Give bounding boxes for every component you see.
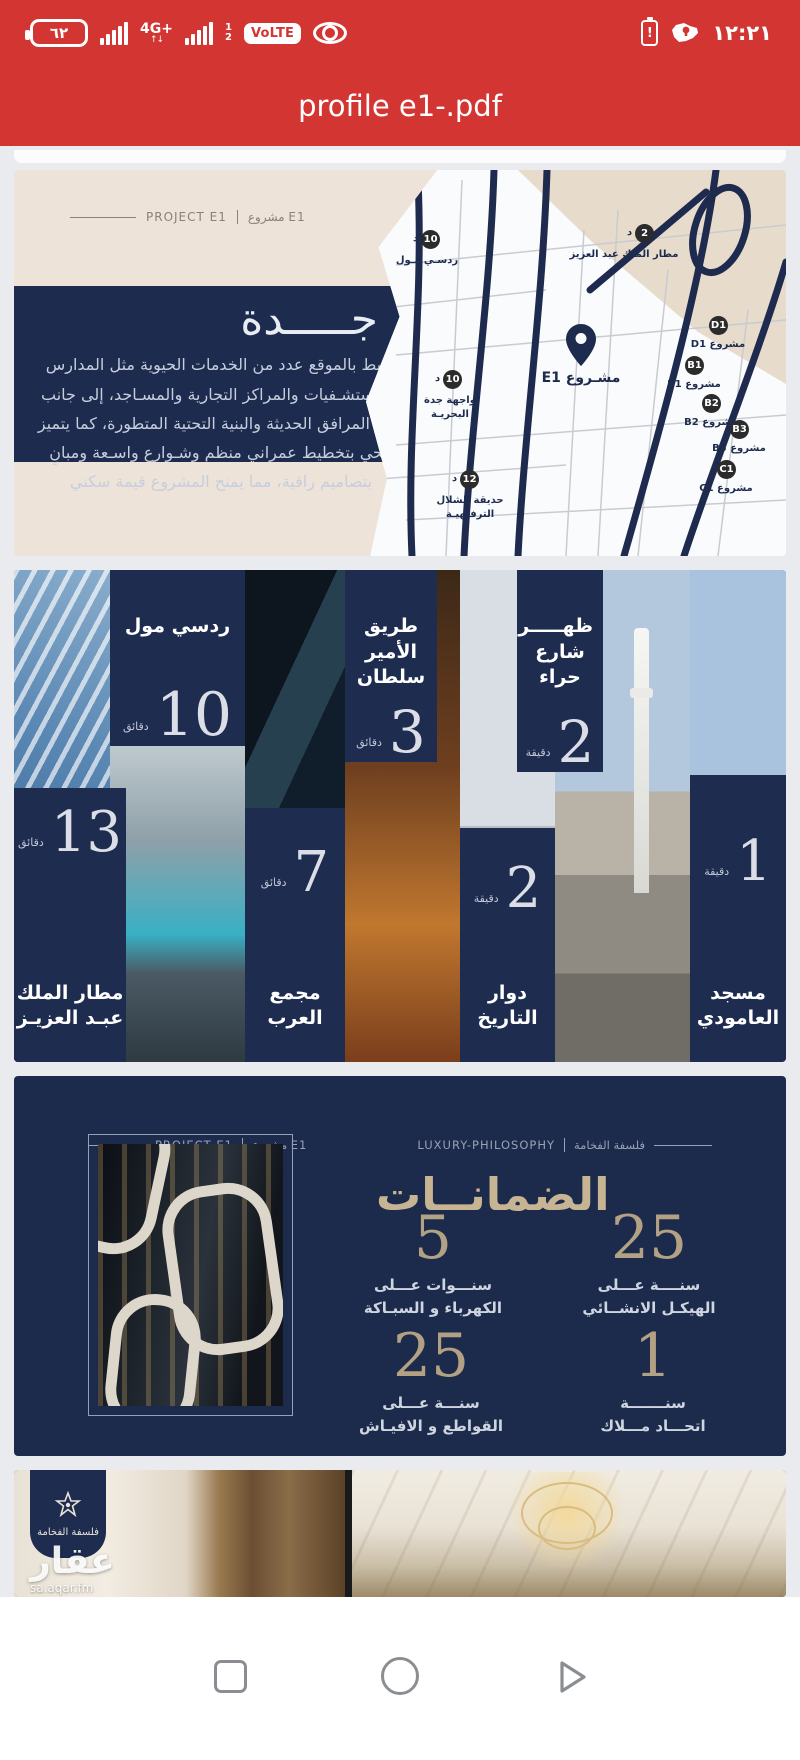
guarantee-value: 1 bbox=[558, 1326, 748, 1386]
guarantee-line2: الهيكـل الانشــائي bbox=[582, 1299, 715, 1317]
status-right-cluster: ! ١٢:٢١ bbox=[641, 16, 772, 50]
map-pin-project-d1-label: مشروع D1 bbox=[686, 338, 750, 352]
map-pin-project-c1: C1 bbox=[717, 460, 736, 479]
pdf-page-guarantees: PROJECT E1 مشروع E1 LUXURY-PHILOSOPHY فل… bbox=[14, 1076, 786, 1456]
map-pin-project-b1: B1 bbox=[685, 356, 704, 375]
guarantee-line2: القواطع و الافيـاش bbox=[359, 1417, 503, 1435]
map-pin-airport-label: مطار الملك عبد العزيز bbox=[559, 248, 689, 262]
project-tag: PROJECT E1 مشروع E1 bbox=[70, 210, 306, 224]
photo-divider bbox=[345, 1470, 352, 1597]
network-4g-label: 4G+ bbox=[140, 22, 173, 36]
luxury-tag-ar: فلسفة الفخامة bbox=[574, 1138, 645, 1152]
status-left-cluster: ٦٢ 4G+ ↑↓ 1 2 VoLTE bbox=[30, 16, 347, 50]
location-card-airport: دقائق 13 مطار الملك عبـد العزيـز bbox=[14, 788, 126, 1062]
chandelier bbox=[512, 1472, 622, 1572]
location-minutes: 2 bbox=[506, 864, 542, 914]
previous-page-edge bbox=[14, 150, 786, 163]
location-name: ظهـــــر شارع حراء bbox=[527, 614, 593, 691]
map-pin-project-c1-label: مشروع C1 bbox=[694, 482, 758, 496]
map-pin-airport: د 2 bbox=[627, 224, 654, 243]
project-location-marker-icon bbox=[566, 324, 596, 370]
mosque-minaret bbox=[634, 628, 649, 893]
signal-bars-sim2-icon bbox=[185, 21, 213, 45]
battery-icon: ٦٢ bbox=[30, 19, 88, 47]
pdf-page-interiors: فلسفة الفخامة عقار sa.aqar.fm bbox=[14, 1470, 786, 1597]
location-minutes: 10 bbox=[156, 688, 232, 742]
location-card-hira-street: ظهـــــر شارع حراء دقيقة 2 bbox=[517, 570, 603, 772]
sim2-label: 2 bbox=[225, 33, 232, 43]
tag-separator bbox=[237, 210, 238, 224]
luxury-philosophy-tag: LUXURY-PHILOSOPHY فلسفة الفخامة bbox=[417, 1138, 712, 1152]
guarantee-line2: الكهرباء و السبـاكة bbox=[364, 1299, 502, 1317]
location-card-amoudi-mosque: دقيقة 1 مسجد العامودي bbox=[690, 775, 786, 1062]
clock: ١٢:٢١ bbox=[712, 21, 772, 45]
location-unit: دقيقة bbox=[526, 746, 551, 759]
city-about-text: يحيط بالموقع عدد من الخدمات الحيوية مثل … bbox=[30, 350, 412, 496]
home-button[interactable] bbox=[381, 1657, 419, 1695]
recents-button[interactable] bbox=[214, 1660, 247, 1693]
building-photo-frame bbox=[88, 1134, 293, 1416]
guarantee-value: 25 bbox=[336, 1326, 526, 1386]
sim-slot-indicator: 1 2 bbox=[225, 23, 232, 43]
volte-badge: VoLTE bbox=[244, 23, 301, 44]
location-name: مطار الملك عبـد العزيـز bbox=[14, 981, 126, 1032]
location-card-redsea-mall: ردسي مول دقائق 10 bbox=[110, 570, 245, 746]
pdf-file-title: profile e1-.pdf bbox=[298, 89, 502, 123]
location-name: طريق الأمير سلطان bbox=[355, 614, 427, 691]
watermark-text: عقار bbox=[30, 1544, 115, 1580]
map-pin-redsea-mall: د 10 bbox=[413, 230, 440, 249]
guarantee-line1: سنــــة عـــلى bbox=[598, 1276, 701, 1294]
city-description-panel: جـــــدة يحيط بالموقع عدد من الخدمات الح… bbox=[14, 286, 438, 462]
project-tag-en: PROJECT E1 bbox=[146, 210, 227, 224]
location-minutes: 3 bbox=[389, 706, 426, 758]
location-minutes: 2 bbox=[558, 716, 595, 768]
map-pin-redsea-mall-label: ردسـي مـول bbox=[392, 254, 462, 268]
status-bar: ٦٢ 4G+ ↑↓ 1 2 VoLTE ! bbox=[0, 0, 800, 66]
data-arrows-icon: ↑↓ bbox=[150, 36, 163, 45]
brand-logo-text: فلسفة الفخامة bbox=[37, 1527, 99, 1538]
location-card-history-roundabout: دقيقة 2 دوار التاريخ bbox=[460, 828, 555, 1062]
saudi-map-location-icon bbox=[670, 21, 700, 45]
guarantee-electric-plumbing: 5 سنـــوات عـــلىالكهرباء و السبـاكة bbox=[338, 1208, 528, 1321]
location-name: ردسي مول bbox=[120, 614, 235, 640]
location-unit: دقائق bbox=[261, 876, 287, 889]
pdf-scroll-area[interactable]: PROJECT E1 مشروع E1 bbox=[0, 146, 800, 1597]
network-type-indicator: 4G+ ↑↓ bbox=[140, 22, 173, 45]
watermark-domain: sa.aqar.fm bbox=[30, 1581, 115, 1595]
battery-percent: ٦٢ bbox=[50, 24, 68, 42]
guarantee-line1: سنـــوات عـــلى bbox=[374, 1276, 492, 1294]
android-nav-bar bbox=[0, 1597, 800, 1760]
location-unit: دقيقة bbox=[474, 892, 499, 905]
location-card-arab-mall: دقائق 7 مجمع العرب bbox=[245, 808, 345, 1062]
tag-rule-line bbox=[654, 1145, 712, 1146]
location-name: دوار التاريخ bbox=[460, 981, 555, 1032]
location-minutes: 13 bbox=[51, 808, 122, 858]
location-minutes: 1 bbox=[736, 837, 772, 887]
project-tag-ar: مشروع E1 bbox=[248, 210, 306, 224]
phone-screen: ٦٢ 4G+ ↑↓ 1 2 VoLTE ! bbox=[0, 0, 800, 1760]
map-pin-waterfront-label: واجهة جدة البحريـة bbox=[410, 394, 490, 421]
battery-alert-icon: ! bbox=[641, 20, 658, 46]
location-name: مسجد العامودي bbox=[690, 981, 786, 1032]
guarantee-switches-sockets: 25 سنـــة عـــلىالقواطع و الافيـاش bbox=[336, 1326, 526, 1439]
guarantee-line1: سنـــــــة bbox=[620, 1394, 686, 1412]
map-pin-project-d1: D1 bbox=[709, 316, 728, 335]
location-unit: دقائق bbox=[18, 836, 44, 849]
map-pin-project-b3-label: مشروع B3 bbox=[707, 442, 771, 456]
map-pin-project-b2: B2 bbox=[702, 394, 721, 413]
location-unit: دقيقة bbox=[704, 865, 729, 878]
pdf-page-locations: ردسي مول دقائق 10 طريق الأمير سلطان دقائ… bbox=[14, 570, 786, 1062]
back-button[interactable] bbox=[552, 1657, 592, 1697]
pdf-title-bar: profile e1-.pdf bbox=[0, 66, 800, 146]
watermark: عقار sa.aqar.fm bbox=[30, 1544, 115, 1595]
location-unit: دقائق bbox=[356, 736, 382, 749]
pdf-page-map: PROJECT E1 مشروع E1 bbox=[14, 170, 786, 556]
location-minutes: 7 bbox=[294, 848, 330, 898]
luxury-tag-en: LUXURY-PHILOSOPHY bbox=[417, 1138, 555, 1152]
interior-photo-right bbox=[352, 1470, 786, 1597]
location-unit: دقائق bbox=[123, 720, 149, 733]
location-name: مجمع العرب bbox=[245, 981, 345, 1032]
tag-rule-line bbox=[70, 217, 136, 218]
eye-comfort-icon bbox=[313, 22, 347, 44]
tag-separator bbox=[564, 1138, 565, 1152]
guarantee-line2: اتحـــاد مـــلاك bbox=[600, 1417, 705, 1435]
map-pin-shalal-park-label: حديقة الشلال الترفيهيـة bbox=[424, 494, 516, 521]
map-pin-project-b1-label: مشروع B1 bbox=[662, 378, 726, 392]
location-card-prince-sultan-road: طريق الأمير سلطان دقائق 3 bbox=[345, 570, 437, 762]
map-pin-project-b3: B3 bbox=[730, 420, 749, 439]
brand-emblem-icon bbox=[53, 1491, 83, 1521]
guarantee-value: 25 bbox=[554, 1208, 744, 1268]
map-pin-shalal-park: د 12 bbox=[452, 470, 479, 489]
project-location-marker-label: مشـروع E1 bbox=[526, 370, 636, 386]
signal-bars-icon bbox=[100, 21, 128, 45]
back-triangle-icon bbox=[552, 1657, 592, 1697]
city-title: جـــــدة bbox=[30, 296, 412, 344]
guarantee-structural: 25 سنــــة عـــلىالهيكـل الانشــائي bbox=[554, 1208, 744, 1321]
map-pin-waterfront: د 10 bbox=[435, 370, 462, 389]
guarantee-value: 5 bbox=[338, 1208, 528, 1268]
guarantee-line1: سنـــة عـــلى bbox=[382, 1394, 480, 1412]
building-photo bbox=[98, 1144, 283, 1406]
guarantee-owners-union: 1 سنـــــــةاتحـــاد مـــلاك bbox=[558, 1326, 748, 1439]
